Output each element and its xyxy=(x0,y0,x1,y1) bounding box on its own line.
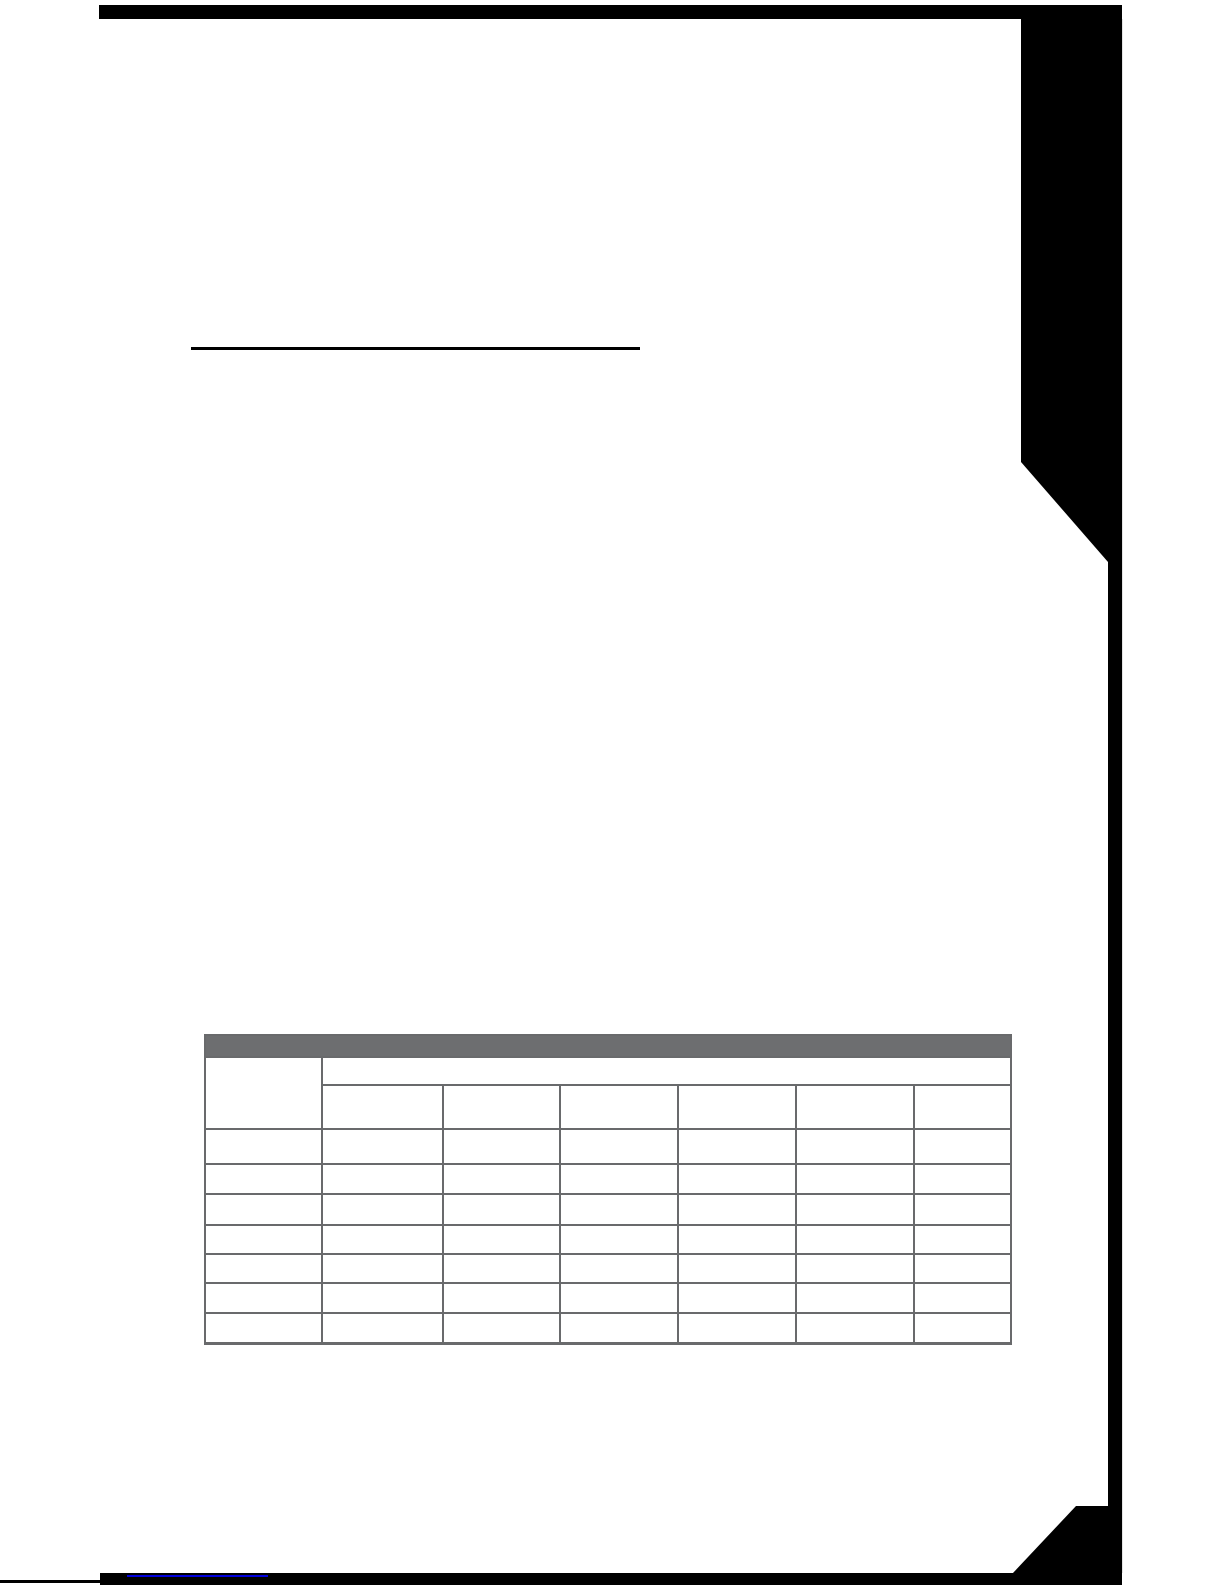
table-cell xyxy=(678,1164,796,1194)
scan-corner-bottom-right xyxy=(1012,1506,1122,1574)
table-cell xyxy=(796,1313,914,1344)
table-cell xyxy=(443,1194,560,1225)
table-cell xyxy=(914,1164,1011,1194)
table-cell xyxy=(560,1194,678,1225)
table-cell xyxy=(678,1283,796,1313)
table-subheader-cell xyxy=(914,1085,1011,1129)
table-subheader-cell xyxy=(322,1085,443,1129)
table-cell xyxy=(796,1254,914,1283)
table-cell xyxy=(205,1225,322,1254)
page-edge-line xyxy=(1122,19,1123,1573)
heading-underline xyxy=(191,347,640,350)
table-cell xyxy=(205,1164,322,1194)
scan-edge-right xyxy=(1108,560,1122,1508)
table-cell xyxy=(322,1283,443,1313)
table-row xyxy=(205,1129,1011,1164)
table-subheader-row xyxy=(205,1085,1011,1129)
scan-corner-top-right xyxy=(1021,18,1122,562)
table-cell xyxy=(560,1164,678,1194)
document-page xyxy=(0,0,1225,1585)
table-cell xyxy=(443,1283,560,1313)
table-cell xyxy=(560,1283,678,1313)
table-cell xyxy=(322,1194,443,1225)
table-span-header-row xyxy=(205,1057,1011,1085)
table-cell xyxy=(678,1194,796,1225)
table-subheader-cell xyxy=(678,1085,796,1129)
table-cell xyxy=(560,1313,678,1344)
table-cell xyxy=(560,1225,678,1254)
table-cell xyxy=(914,1129,1011,1164)
table-cell xyxy=(914,1283,1011,1313)
table-cell xyxy=(205,1194,322,1225)
table-row xyxy=(205,1254,1011,1283)
table-cell xyxy=(205,1283,322,1313)
table-cell xyxy=(796,1164,914,1194)
table-row xyxy=(205,1283,1011,1313)
footer-link-underline[interactable] xyxy=(127,1575,268,1577)
scan-edge-bottom-thin xyxy=(0,1580,100,1583)
table-cell xyxy=(322,1129,443,1164)
table-cell xyxy=(796,1129,914,1164)
table-cell xyxy=(443,1164,560,1194)
table-cell xyxy=(796,1225,914,1254)
table-span-header xyxy=(322,1057,1011,1085)
table-row xyxy=(205,1194,1011,1225)
table-row xyxy=(205,1225,1011,1254)
table-subheader-cell xyxy=(443,1085,560,1129)
table-row xyxy=(205,1164,1011,1194)
table-cell xyxy=(914,1254,1011,1283)
table-cell xyxy=(914,1194,1011,1225)
table-header-bar-row xyxy=(205,1035,1011,1057)
table-cell xyxy=(678,1254,796,1283)
table-stub-header xyxy=(205,1057,322,1129)
table-cell xyxy=(205,1254,322,1283)
table-cell xyxy=(678,1225,796,1254)
table-cell xyxy=(443,1254,560,1283)
table-cell xyxy=(796,1283,914,1313)
table-cell xyxy=(796,1194,914,1225)
table-cell xyxy=(322,1313,443,1344)
table-cell xyxy=(914,1225,1011,1254)
table-cell xyxy=(443,1129,560,1164)
table-cell xyxy=(205,1313,322,1344)
table-cell xyxy=(205,1129,322,1164)
table-cell xyxy=(678,1129,796,1164)
table-header-bar xyxy=(205,1035,1011,1057)
table-cell xyxy=(322,1164,443,1194)
table-cell xyxy=(443,1225,560,1254)
table-cell xyxy=(443,1313,560,1344)
table-subheader-cell xyxy=(796,1085,914,1129)
table-cell xyxy=(560,1129,678,1164)
table-cell xyxy=(322,1225,443,1254)
table-cell xyxy=(914,1313,1011,1344)
table-cell xyxy=(560,1254,678,1283)
table-row xyxy=(205,1313,1011,1344)
data-table xyxy=(204,1034,1012,1345)
table-cell xyxy=(678,1313,796,1344)
table-subheader-cell xyxy=(560,1085,678,1129)
scan-edge-top xyxy=(99,5,1122,19)
table-cell xyxy=(322,1254,443,1283)
